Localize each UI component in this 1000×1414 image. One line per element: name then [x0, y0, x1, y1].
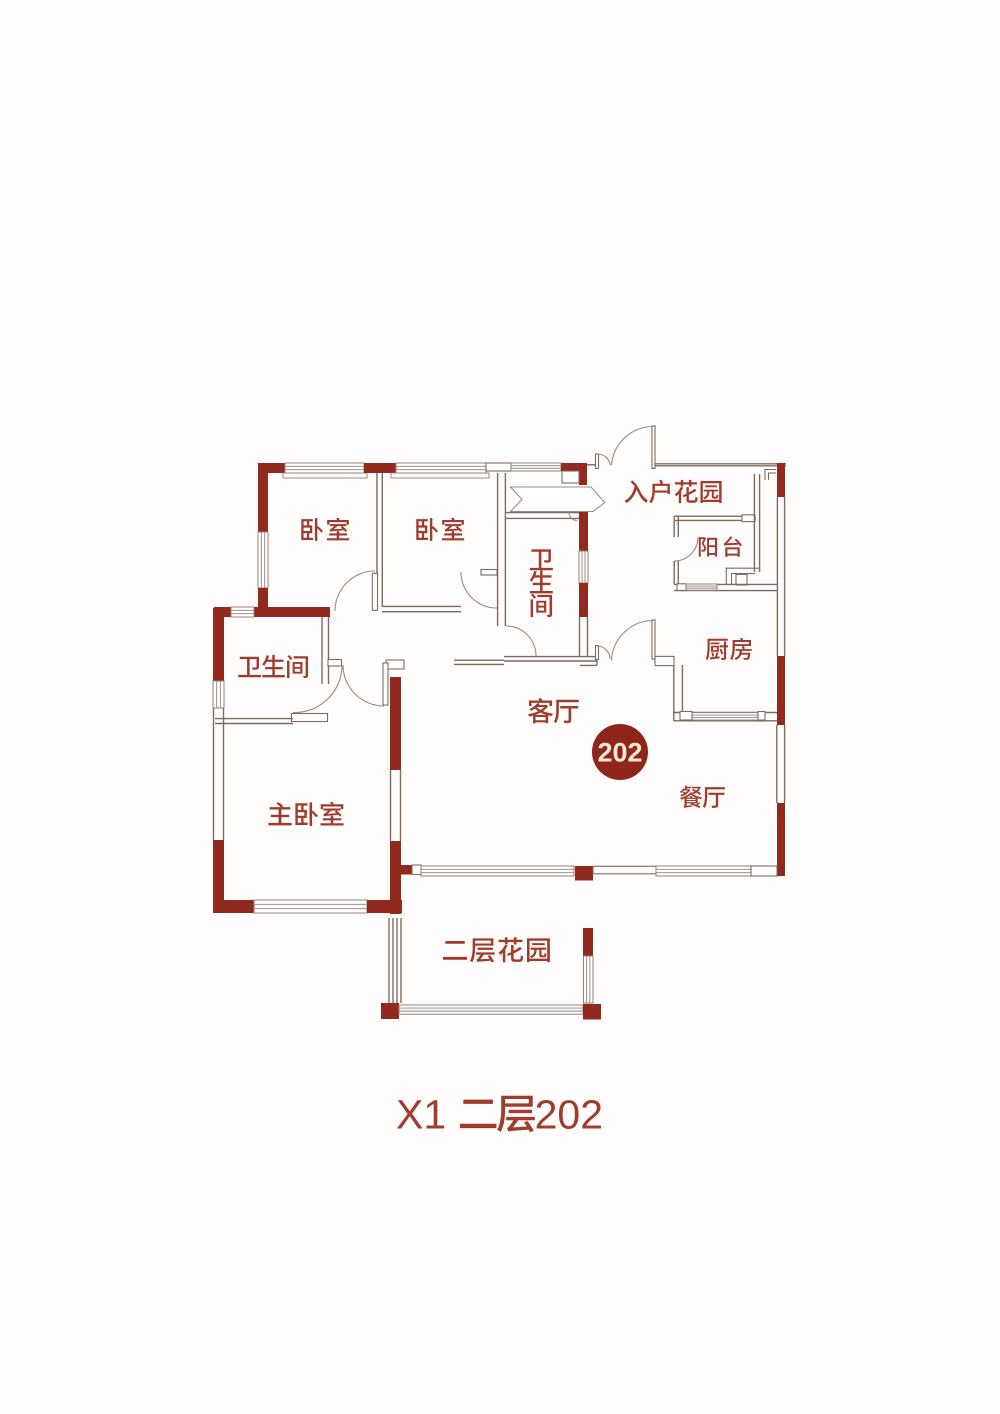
svg-text:X1: X1 — [396, 1092, 446, 1138]
svg-text:202: 202 — [597, 738, 642, 768]
svg-text:202: 202 — [535, 1092, 603, 1138]
